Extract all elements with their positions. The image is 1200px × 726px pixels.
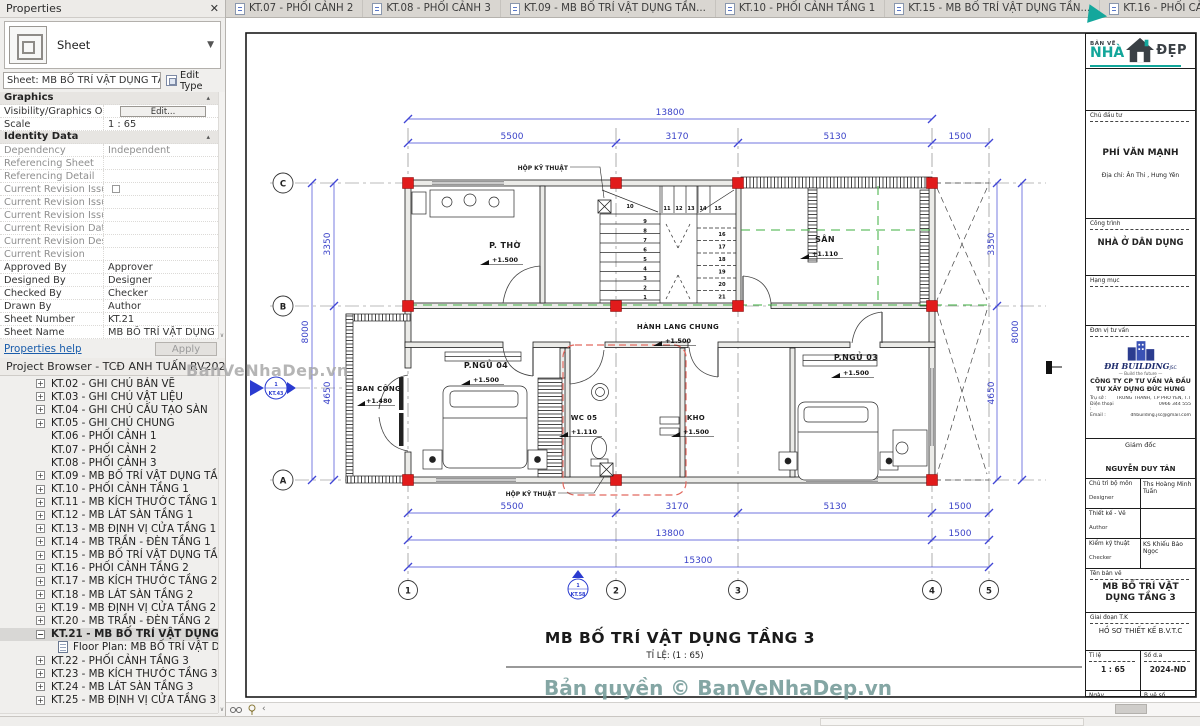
property-row[interactable]: Designed ByDesigner (0, 274, 218, 287)
email-label: Email : (1090, 413, 1116, 419)
browser-item-sheet[interactable]: +KT.22 - PHỐI CẢNH TẦNG 3 (0, 654, 218, 667)
expand-icon[interactable]: + (36, 485, 45, 494)
property-label: Scale (0, 118, 104, 130)
browser-item-label: KT.25 - MB ĐỊNH VỊ CỬA TẦNG 3 (51, 694, 216, 706)
svg-text:5: 5 (986, 587, 992, 597)
browser-item-sheet[interactable]: +KT.05 - GHI CHÚ CHUNG (0, 417, 218, 430)
phase-value: HỒ SƠ THIẾT KẾ B.V.T.C (1090, 627, 1191, 635)
browser-item-label: KT.09 - MB BỐ TRÍ VẬT DỤNG TẦNG 1 (51, 470, 218, 482)
role-value: KS Khiếu Bảo Ngọc (1141, 539, 1195, 568)
property-row[interactable]: Current Revision Issu... (0, 209, 218, 222)
browser-item-sheet[interactable]: +KT.24 - MB LÁT SÀN TẦNG 3 (0, 680, 218, 693)
svg-text:3350: 3350 (987, 232, 997, 255)
browser-item-sheet[interactable]: −KT.21 - MB BỐ TRÍ VẬT DỤNG TẦNG (0, 628, 218, 641)
svg-text:13800: 13800 (656, 529, 685, 539)
svg-text:+1.500: +1.500 (473, 376, 499, 384)
main-area: KT.07 - PHỐI CẢNH 2KT.08 - PHỐI CẢNH 3KT… (226, 0, 1200, 726)
close-icon[interactable]: ✕ (210, 2, 219, 15)
browser-item-sheet[interactable]: +KT.11 - MB KÍCH THƯỚC TẦNG 1 (0, 496, 218, 509)
role-label: Thiết kế - Vẽ (1089, 511, 1137, 517)
svg-text:+1.110: +1.110 (812, 250, 838, 258)
browser-item-label: KT.04 - GHI CHÚ CẤU TẠO SÀN (51, 404, 208, 416)
titleblock-scale-row: Tỉ lệ 1 : 65 Số d.a 2024-ND (1086, 651, 1195, 691)
browser-item-label: KT.15 - MB BỐ TRÍ VẬT DỤNG TẦNG 2 (51, 549, 218, 561)
browser-item-label: KT.16 - PHỐI CẢNH TẦNG 2 (51, 562, 189, 574)
consultant-logo-suffix: JSC (1169, 366, 1176, 371)
browser-item-label: KT.02 - GHI CHÚ BẢN VẼ (51, 378, 175, 390)
status-bar (0, 716, 1200, 726)
sheet-no-label: B.vẽ số (1144, 693, 1192, 697)
svg-text:5: 5 (643, 257, 647, 263)
view-tab-label: KT.09 - MB BỐ TRÍ VẬT DỤNG TẦN... (524, 3, 706, 14)
browser-item-label: KT.24 - MB LÁT SÀN TẦNG 3 (51, 681, 193, 693)
browser-item-label: KT.05 - GHI CHÚ CHUNG (51, 417, 175, 429)
view-tab[interactable]: KT.10 - PHỐI CẢNH TẦNG 1 (716, 0, 885, 17)
property-value[interactable] (104, 209, 218, 221)
svg-text:4: 4 (929, 587, 935, 597)
dh-building-logo-icon (1126, 339, 1156, 361)
browser-item-label: KT.11 - MB KÍCH THƯỚC TẦNG 1 (51, 496, 217, 508)
collapse-icon[interactable]: ▴ (206, 92, 218, 104)
sheet-icon (372, 3, 382, 15)
floor-plan: 12 34 56 78 9 1011 1213 1415 1617 1819 2… (226, 18, 1200, 716)
email-value: dhbuilding.jsc@gmail.com (1116, 413, 1191, 419)
property-value[interactable] (104, 235, 218, 247)
svg-text:1500: 1500 (949, 529, 972, 539)
type-selector[interactable]: Sheet ▼ (4, 21, 221, 69)
title-block: BẢN VẼ NHÀ ĐẸP Chủ đầu tư PHÍ VĂN MẠNH (1085, 33, 1196, 697)
browser-tree: +KT.02 - GHI CHÚ BẢN VẼ+KT.03 - GHI CHÚ … (0, 377, 218, 713)
svg-text:19: 19 (718, 270, 726, 276)
titleblock-project: Công trình NHÀ Ở DÂN DỤNG (1086, 219, 1195, 276)
property-value[interactable] (104, 183, 218, 195)
svg-text:14: 14 (699, 206, 707, 212)
view-tab[interactable]: KT.07 - PHỐI CẢNH 2 (226, 0, 363, 17)
canvas-hscroll-thumb[interactable] (1115, 704, 1147, 714)
svg-text:WC 05: WC 05 (571, 414, 598, 422)
role-value (1141, 509, 1195, 538)
room-name: P. THỜ (489, 239, 521, 250)
svg-text:11: 11 (663, 206, 671, 212)
role-value: Ths Hoàng Minh Tuấn (1141, 479, 1195, 508)
browser-item-label: KT.07 - PHỐI CẢNH 2 (51, 444, 157, 456)
property-label: Current Revision Issu... (0, 183, 104, 195)
browser-item-sheet[interactable]: +KT.15 - MB BỐ TRÍ VẬT DỤNG TẦNG 2 (0, 548, 218, 561)
svg-text:4650: 4650 (987, 381, 997, 404)
svg-text:5130: 5130 (824, 132, 847, 142)
edit-type-button[interactable]: Edit Type (164, 72, 222, 89)
logo-text-2: NHÀ (1090, 47, 1124, 60)
expand-icon[interactable]: + (36, 471, 45, 480)
instance-selector-label: Sheet: MB BỐ TRÍ VẬT DỤNG TẦNG (7, 75, 161, 86)
property-row[interactable]: Approved ByApprover (0, 261, 218, 274)
drawing-name-label: Tên bản vẽ (1090, 571, 1191, 577)
browser-item-sheet[interactable]: +KT.18 - MB LÁT SÀN TẦNG 2 (0, 588, 218, 601)
property-value[interactable] (104, 248, 218, 260)
view-tab[interactable]: KT.16 - PHỐI CẢNH TẦNG 2 (1100, 0, 1200, 17)
view-tab[interactable]: KT.15 - MB BỐ TRÍ VẬT DỤNG TẦN... (885, 0, 1100, 17)
property-label: Current Revision Des... (0, 235, 104, 247)
chevron-down-icon[interactable]: ▼ (207, 40, 220, 50)
titleblock-investor: Chủ đầu tư PHÍ VĂN MẠNH Địa chỉ: Ân Thi … (1086, 111, 1195, 219)
titleblock-blank (1086, 69, 1195, 111)
property-row[interactable]: Sheet NameMB BỐ TRÍ VẬT DỤNG (0, 326, 218, 339)
titleblock-category: Hạng mục (1086, 276, 1195, 326)
property-label: Approved By (0, 261, 104, 273)
expand-icon[interactable]: + (36, 656, 45, 665)
svg-text:1: 1 (643, 295, 647, 301)
browser-item-sheet[interactable]: +KT.08 - PHỐI CẢNH 3 (0, 456, 218, 469)
svg-text:8000: 8000 (301, 320, 311, 343)
phone-value: 0966 344 555 (1116, 402, 1191, 413)
expand-icon[interactable]: + (36, 577, 45, 586)
property-row[interactable]: Referencing Sheet (0, 157, 218, 170)
properties-scrollbar[interactable]: ∨ (218, 92, 225, 339)
svg-text:+1.500: +1.500 (843, 369, 869, 377)
sheet-type-icon (9, 26, 47, 64)
expand-icon[interactable]: + (36, 616, 45, 625)
view-tab-label: KT.16 - PHỐI CẢNH TẦNG 2 (1123, 3, 1200, 14)
svg-text:15: 15 (714, 206, 722, 212)
svg-text:13: 13 (687, 206, 695, 212)
property-row[interactable]: Current Revision (0, 248, 218, 261)
expand-icon[interactable]: + (36, 405, 45, 414)
browser-item-label: KT.12 - MB LÁT SÀN TẦNG 1 (51, 509, 193, 521)
browser-item-sheet[interactable]: +KT.25 - MB ĐỊNH VỊ CỬA TẦNG 3 (0, 694, 218, 707)
property-label: Referencing Sheet (0, 157, 104, 169)
date-label: Ngày (1089, 693, 1137, 697)
view-tab-label: KT.15 - MB BỐ TRÍ VẬT DỤNG TẦN... (908, 3, 1090, 14)
svg-text:20: 20 (718, 282, 726, 288)
browser-item-sheet[interactable]: +KT.23 - MB KÍCH THƯỚC TẦNG 3 (0, 667, 218, 680)
section-label: Identity Data (4, 131, 78, 143)
svg-text:3: 3 (735, 587, 741, 597)
project-no-value: 2024-ND (1144, 665, 1192, 674)
expand-icon[interactable]: + (36, 524, 45, 533)
svg-text:1500: 1500 (949, 502, 972, 512)
property-label: Sheet Name (0, 326, 104, 338)
titleblock-drawing-name: Tên bản vẽ MB BỐ TRÍ VẬT DỤNG TẦNG 3 (1086, 569, 1195, 613)
phone-label: Điện thoại : (1090, 402, 1116, 413)
sheet-icon (510, 3, 520, 15)
svg-text:3350: 3350 (323, 232, 333, 255)
browser-item-sheet[interactable]: +KT.14 - MB TRẦN - ĐÈN TẦNG 1 (0, 535, 218, 548)
property-label: Designed By (0, 274, 104, 286)
expand-icon[interactable]: + (36, 498, 45, 507)
expand-icon[interactable]: + (36, 590, 45, 599)
property-row[interactable]: DependencyIndependent (0, 144, 218, 157)
role-label: Chủ trì bộ môn (1089, 481, 1137, 487)
svg-text:C: C (280, 180, 286, 190)
collapse-icon[interactable]: ▴ (206, 131, 218, 143)
project-label: Công trình (1090, 221, 1191, 227)
titleblock-logo: BẢN VẼ NHÀ ĐẸP (1086, 34, 1195, 69)
property-value[interactable] (104, 196, 218, 208)
browser-item-label: KT.23 - MB KÍCH THƯỚC TẦNG 3 (51, 668, 217, 680)
titleblock-date-row: Ngày B.vẽ số (1086, 691, 1195, 697)
scale-label: Tỉ lệ (1089, 653, 1137, 659)
apply-button[interactable]: Apply (155, 342, 217, 356)
category-label: Hạng mục (1090, 278, 1191, 284)
role-sub: Designer (1089, 495, 1137, 501)
property-value[interactable] (104, 222, 218, 234)
svg-text:17: 17 (718, 245, 726, 251)
svg-text:HÀNH LANG CHUNG: HÀNH LANG CHUNG (637, 322, 719, 331)
back-arrow-icon[interactable]: ‹ (262, 705, 266, 714)
role-sub: Author (1089, 525, 1137, 531)
role-label: Kiểm kỹ thuật (1089, 541, 1137, 547)
property-row[interactable]: Referencing Detail (0, 170, 218, 183)
svg-text:8000: 8000 (1011, 320, 1021, 343)
property-row[interactable]: Drawn ByAuthor (0, 300, 218, 313)
svg-text:+1.480: +1.480 (366, 397, 392, 405)
floor-plan-icon (58, 641, 68, 653)
svg-text:+1.110: +1.110 (571, 428, 597, 436)
reveal-hidden-lightbulb-icon[interactable] (248, 704, 256, 715)
svg-text:+1.500: +1.500 (665, 337, 691, 345)
svg-text:+1.500: +1.500 (683, 428, 709, 436)
svg-text:5500: 5500 (501, 132, 524, 142)
properties-title: Properties (6, 2, 62, 15)
svg-text:3170: 3170 (666, 502, 689, 512)
titleblock-consultant: Đơn vị tư vấn ĐH BUILDINGJSC — Build the… (1086, 326, 1195, 439)
property-row[interactable]: Sheet NumberKT.21 (0, 313, 218, 326)
svg-text:SÂN: SÂN (815, 233, 835, 244)
browser-item-label: Floor Plan: MB BỐ TRÍ VẬT DỤNG (73, 641, 218, 653)
browser-item-label: KT.20 - MB TRẦN - ĐÈN TẦNG 2 (51, 615, 211, 627)
property-value[interactable]: Approver (104, 261, 218, 273)
status-progress-box (820, 718, 1084, 726)
investor-address: Địa chỉ: Ân Thi , Hưng Yên (1090, 172, 1191, 179)
investor-label: Chủ đầu tư (1090, 113, 1191, 119)
browser-item-label: KT.03 - GHI CHÚ VẬT LIỆU (51, 391, 183, 403)
property-value[interactable]: Designer (104, 274, 218, 286)
svg-text:5130: 5130 (824, 502, 847, 512)
property-label: Sheet Number (0, 313, 104, 325)
property-value[interactable]: Checker (104, 287, 218, 299)
checkbox[interactable] (112, 185, 120, 193)
svg-text:KHO: KHO (687, 414, 705, 422)
browser-item-label: KT.13 - MB ĐỊNH VỊ CỬA TẦNG 1 (51, 523, 216, 535)
expand-icon[interactable]: + (36, 669, 45, 678)
director-name: NGUYỄN DUY TÂN (1090, 465, 1191, 473)
svg-text:BAN CÔNG: BAN CÔNG (357, 384, 401, 393)
instance-selector[interactable]: Sheet: MB BỐ TRÍ VẬT DỤNG TẦNG ∨ (3, 72, 161, 89)
property-label: Current Revision Issu... (0, 196, 104, 208)
browser-item-sheet[interactable]: +KT.17 - MB KÍCH THƯỚC TẦNG 2 (0, 575, 218, 588)
drawing-canvas[interactable]: 12 34 56 78 9 1011 1213 1415 1617 1819 2… (226, 18, 1200, 716)
view-tab[interactable]: KT.08 - PHỐI CẢNH 3 (363, 0, 500, 17)
sheet-icon (235, 3, 245, 15)
property-label: Drawn By (0, 300, 104, 312)
svg-text:5500: 5500 (501, 502, 524, 512)
property-value[interactable]: Author (104, 300, 218, 312)
expand-icon[interactable]: + (36, 419, 45, 428)
expand-icon[interactable]: + (36, 511, 45, 520)
browser-item-view[interactable]: Floor Plan: MB BỐ TRÍ VẬT DỤNG (0, 641, 218, 654)
section-label: Graphics (4, 92, 53, 104)
view-control-bar: ‹ (226, 702, 1200, 716)
titleblock-role-row: Kiểm kỹ thuậtChecker KS Khiếu Bảo Ngọc (1086, 539, 1195, 569)
sheet-icon (725, 3, 735, 15)
drawing-name: MB BỐ TRÍ VẬT DỤNG TẦNG 3 (1090, 582, 1191, 604)
titleblock-role-row: Chủ trì bộ mônDesigner Ths Hoàng Minh Tu… (1086, 479, 1195, 509)
phase-label: Giai đoạn T.K (1090, 615, 1191, 621)
browser-item-sheet[interactable]: +KT.16 - PHỐI CẢNH TẦNG 2 (0, 562, 218, 575)
browser-item-label: KT.19 - MB ĐỊNH VỊ CỬA TẦNG 2 (51, 602, 216, 614)
project-name: NHÀ Ở DÂN DỤNG (1090, 238, 1191, 248)
property-label: Dependency (0, 144, 104, 156)
browser-item-sheet[interactable]: +KT.19 - MB ĐỊNH VỊ CỬA TẦNG 2 (0, 601, 218, 614)
svg-text:13800: 13800 (656, 108, 685, 118)
browser-item-label: KT.22 - PHỐI CẢNH TẦNG 3 (51, 655, 189, 667)
edit-button[interactable]: Edit... (120, 106, 206, 117)
property-label: Visibility/Graphics O... (0, 105, 104, 117)
type-selector-label: Sheet (51, 38, 207, 52)
consultant-tagline: — Build the future — (1090, 371, 1191, 376)
svg-text:9: 9 (643, 219, 647, 225)
expand-icon[interactable]: + (36, 379, 45, 388)
director-label: Giám đốc (1090, 441, 1191, 449)
property-value[interactable] (104, 157, 218, 169)
browser-item-sheet[interactable]: +KT.12 - MB LÁT SÀN TẦNG 1 (0, 509, 218, 522)
svg-text:KT.43: KT.43 (269, 391, 284, 397)
property-value[interactable]: Independent (104, 144, 218, 156)
view-tab[interactable]: KT.09 - MB BỐ TRÍ VẬT DỤNG TẦN... (501, 0, 716, 17)
project-browser-header: Project Browser - TCĐ ANH TUẤN RV2022 (0, 358, 225, 376)
browser-item-sheet[interactable]: +KT.02 - GHI CHÚ BẢN VẼ (0, 377, 218, 390)
property-value[interactable]: MB BỐ TRÍ VẬT DỤNG (104, 326, 218, 338)
project-browser: Project Browser - TCĐ ANH TUẤN RV2022 +K… (0, 358, 225, 726)
property-value[interactable]: 1 : 65 (104, 118, 218, 130)
expand-icon[interactable]: + (36, 392, 45, 401)
consultant-company: CÔNG TY CP TƯ VẤN VÀ ĐẦU TƯ XÂY DỰNG ĐỨC… (1090, 378, 1191, 393)
browser-item-label: KT.10 - PHỐI CẢNH TẦNG 1 (51, 483, 189, 495)
expand-icon[interactable]: + (36, 696, 45, 705)
svg-text:4: 4 (643, 267, 647, 273)
shaft-label-top: HỘP KỸ THUẬT (518, 165, 569, 172)
browser-item-sheet[interactable]: +KT.10 - PHỐI CẢNH TẦNG 1 (0, 483, 218, 496)
logo-text-3: ĐẸP (1156, 43, 1187, 58)
edit-type-icon (166, 75, 177, 86)
browser-item-sheet[interactable]: +KT.09 - MB BỐ TRÍ VẬT DỤNG TẦNG 1 (0, 469, 218, 482)
svg-text:3: 3 (643, 276, 647, 282)
property-label: Current Revision (0, 248, 104, 260)
consultant-logo-text: ĐH BUILDING (1104, 361, 1169, 371)
svg-text:10: 10 (626, 204, 634, 210)
svg-text:1: 1 (274, 382, 277, 388)
property-row[interactable]: Current Revision Issu... (0, 196, 218, 209)
property-row[interactable]: Current Revision Date (0, 222, 218, 235)
svg-text:3170: 3170 (666, 132, 689, 142)
edit-type-label: Edit Type (180, 70, 222, 92)
svg-text:1: 1 (405, 587, 411, 597)
house-logo-icon (1126, 37, 1154, 63)
properties-help-link[interactable]: Properties help (0, 343, 82, 355)
browser-item-sheet[interactable]: +KT.13 - MB ĐỊNH VỊ CỬA TẦNG 1 (0, 522, 218, 535)
browser-vscrollbar[interactable]: ∨ (218, 377, 225, 713)
sheet-icon (1109, 3, 1119, 15)
property-section-header[interactable]: Graphics▴ (0, 92, 218, 105)
svg-text:1500: 1500 (949, 132, 972, 142)
browser-item-label: KT.18 - MB LÁT SÀN TẦNG 2 (51, 589, 193, 601)
property-row[interactable]: Current Revision Des... (0, 235, 218, 248)
role-sub: Checker (1089, 555, 1137, 561)
browser-item-label: KT.17 - MB KÍCH THƯỚC TẦNG 2 (51, 575, 217, 587)
browser-item-sheet[interactable]: +KT.20 - MB TRẦN - ĐÈN TẦNG 2 (0, 614, 218, 627)
svg-text:A: A (280, 477, 287, 487)
svg-text:1: 1 (576, 583, 579, 589)
property-row[interactable]: Scale1 : 65 (0, 118, 218, 131)
property-row[interactable]: Current Revision Issu... (0, 183, 218, 196)
property-value[interactable]: Edit... (104, 105, 218, 117)
property-label: Referencing Detail (0, 170, 104, 182)
properties-header: Properties ✕ (0, 0, 225, 18)
svg-text:12: 12 (675, 206, 683, 212)
expand-icon[interactable]: + (36, 682, 45, 691)
property-value[interactable] (104, 170, 218, 182)
svg-text:15300: 15300 (684, 556, 713, 566)
browser-item-label: KT.06 - PHỐI CẢNH 1 (51, 430, 157, 442)
svg-text:2: 2 (643, 286, 647, 292)
sheet-frame (246, 33, 1196, 697)
browser-item-sheet[interactable]: +KT.03 - GHI CHÚ VẬT LIỆU (0, 390, 218, 403)
property-value[interactable]: KT.21 (104, 313, 218, 325)
browser-item-label: KT.08 - PHỐI CẢNH 3 (51, 457, 157, 469)
svg-text:18: 18 (718, 257, 726, 263)
view-tab-bar: KT.07 - PHỐI CẢNH 2KT.08 - PHỐI CẢNH 3KT… (226, 0, 1200, 18)
property-label: Current Revision Date (0, 222, 104, 234)
svg-text:7: 7 (643, 238, 647, 244)
property-label: Checked By (0, 287, 104, 299)
sheet-icon (894, 3, 904, 15)
view-tab-label: KT.10 - PHỐI CẢNH TẦNG 1 (739, 3, 875, 14)
investor-name: PHÍ VĂN MẠNH (1090, 148, 1191, 158)
titleblock-phase: Giai đoạn T.K HỒ SƠ THIẾT KẾ B.V.T.C (1086, 613, 1195, 651)
svg-text:B: B (280, 303, 286, 313)
view-tab-label: KT.08 - PHỐI CẢNH 3 (386, 3, 490, 14)
view-tab-label: KT.07 - PHỐI CẢNH 2 (249, 3, 353, 14)
left-panel: Properties ✕ Sheet ▼ Sheet: MB BỐ TRÍ VẬ… (0, 0, 226, 726)
browser-item-label: KT.14 - MB TRẦN - ĐÈN TẦNG 1 (51, 536, 211, 548)
project-browser-title: Project Browser - TCĐ ANH TUẤN RV2022 (6, 360, 225, 373)
property-row[interactable]: Visibility/Graphics O...Edit... (0, 105, 218, 118)
expand-icon[interactable]: + (36, 537, 45, 546)
svg-text:16: 16 (718, 232, 726, 238)
viewport-scale: TỈ LỆ: (1 : 65) (645, 649, 703, 661)
expand-icon[interactable]: + (36, 551, 45, 560)
property-section-header[interactable]: Identity Data▴ (0, 131, 218, 144)
expand-icon[interactable]: + (36, 564, 45, 573)
property-label: Current Revision Issu... (0, 209, 104, 221)
titleblock-director: Giám đốc NGUYỄN DUY TÂN (1086, 439, 1195, 479)
browser-item-sheet[interactable]: +KT.04 - GHI CHÚ CẤU TẠO SÀN (0, 403, 218, 416)
property-row[interactable]: Checked ByChecker (0, 287, 218, 300)
svg-text:6: 6 (643, 248, 647, 254)
viewport-title: MB BỐ TRÍ VẬT DỤNG TẦNG 3 (545, 626, 815, 647)
titleblock-role-row: Thiết kế - VẽAuthor (1086, 509, 1195, 539)
browser-item-label: KT.21 - MB BỐ TRÍ VẬT DỤNG TẦNG (51, 628, 218, 640)
visual-style-icon[interactable] (230, 705, 242, 714)
logo-underline (1090, 65, 1181, 67)
svg-text:4650: 4650 (323, 381, 333, 404)
browser-item-sheet[interactable]: +KT.07 - PHỐI CẢNH 2 (0, 443, 218, 456)
svg-text:8: 8 (643, 229, 647, 235)
expand-icon[interactable]: − (36, 630, 45, 639)
expand-icon[interactable]: + (36, 603, 45, 612)
browser-item-sheet[interactable]: +KT.06 - PHỐI CẢNH 1 (0, 430, 218, 443)
properties-grid: Graphics▴Visibility/Graphics O...Edit...… (0, 92, 218, 339)
